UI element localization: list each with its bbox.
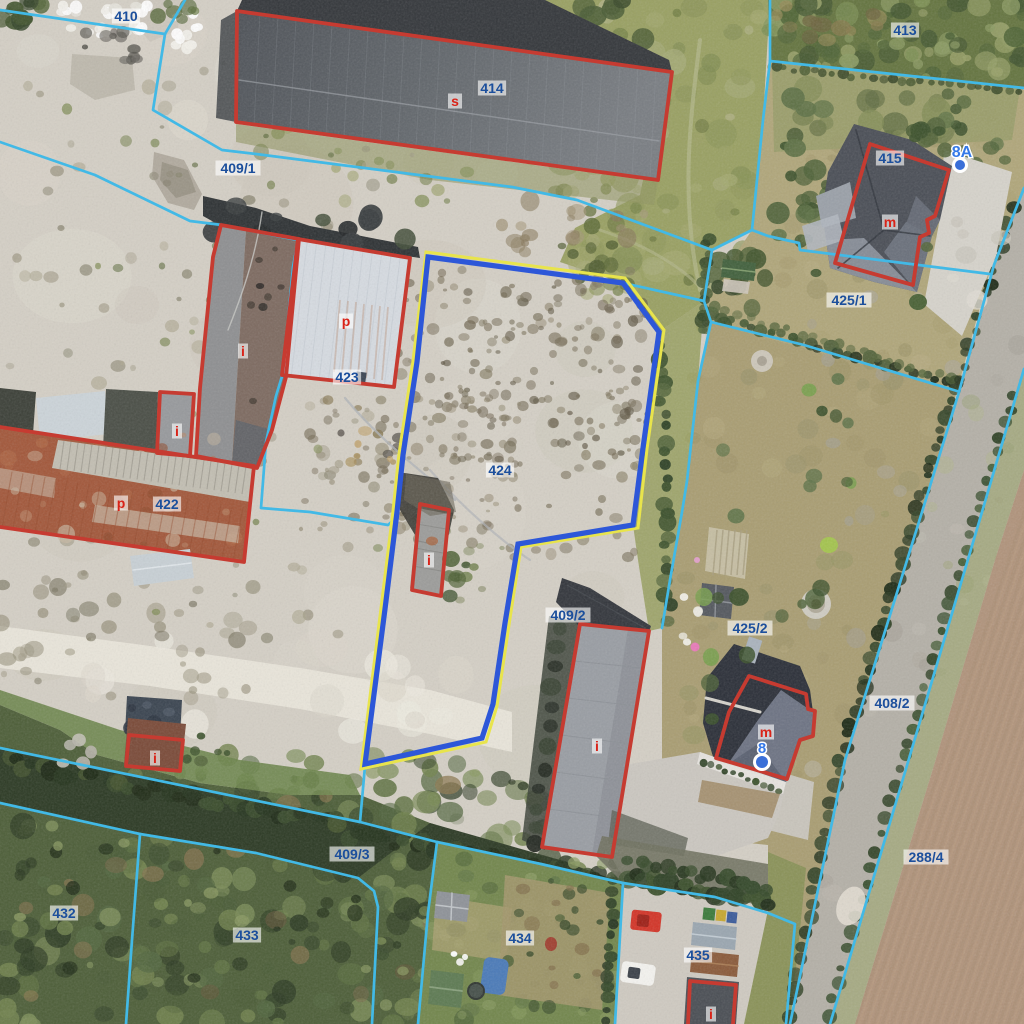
svg-text:422: 422 bbox=[155, 496, 179, 512]
svg-text:i: i bbox=[709, 1006, 713, 1022]
svg-text:288/4: 288/4 bbox=[908, 849, 943, 865]
svg-text:432: 432 bbox=[52, 905, 76, 921]
svg-text:i: i bbox=[175, 423, 179, 439]
svg-text:m: m bbox=[884, 214, 896, 230]
svg-text:i: i bbox=[153, 750, 157, 766]
svg-text:433: 433 bbox=[235, 927, 259, 943]
svg-text:408/2: 408/2 bbox=[874, 695, 909, 711]
svg-text:414: 414 bbox=[480, 80, 504, 96]
svg-text:423: 423 bbox=[335, 369, 359, 385]
svg-text:409/2: 409/2 bbox=[550, 607, 585, 623]
svg-text:s: s bbox=[451, 93, 459, 109]
svg-text:425/1: 425/1 bbox=[831, 292, 866, 308]
svg-text:i: i bbox=[595, 738, 599, 754]
svg-text:425/2: 425/2 bbox=[732, 620, 767, 636]
svg-text:410: 410 bbox=[114, 8, 138, 24]
svg-text:p: p bbox=[117, 495, 126, 511]
svg-text:i: i bbox=[241, 343, 245, 359]
svg-text:415: 415 bbox=[878, 150, 902, 166]
svg-text:409/1: 409/1 bbox=[220, 160, 255, 176]
svg-text:m: m bbox=[760, 724, 772, 740]
svg-text:435: 435 bbox=[686, 947, 710, 963]
svg-text:i: i bbox=[427, 552, 431, 568]
svg-text:p: p bbox=[342, 313, 351, 329]
svg-text:413: 413 bbox=[893, 22, 917, 38]
svg-text:424: 424 bbox=[488, 462, 512, 478]
svg-text:434: 434 bbox=[508, 930, 532, 946]
svg-text:409/3: 409/3 bbox=[334, 846, 369, 862]
